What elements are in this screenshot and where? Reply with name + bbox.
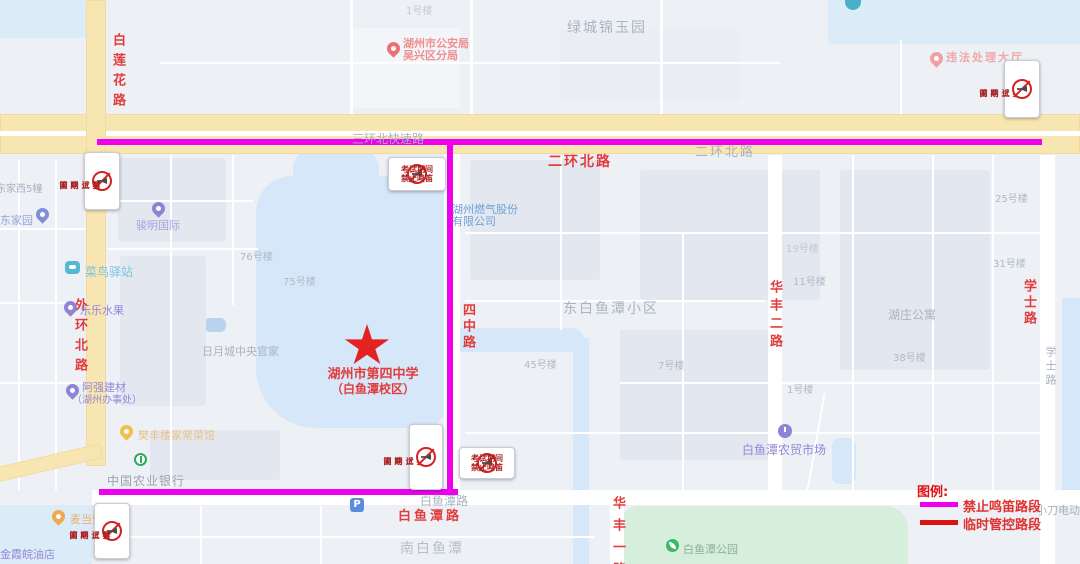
building-label-1-top: 1号楼 [406,2,432,17]
poi-police-line2: 吴兴区分局 [403,49,458,62]
park-icon[interactable] [666,539,679,552]
poi-market[interactable]: 白鱼潭农贸市场 [742,441,826,458]
building-label-45: 45号楼 [524,356,557,371]
road-label-xueshi-gray: 学士路 [1042,346,1058,388]
legend-no-horn-swatch [920,502,958,507]
road-label-huafeng1: 华丰一路 [608,496,627,564]
area-label-dongjiaxi: 东家西5幢 [0,180,42,195]
street-line [900,40,902,116]
legend-title: 图例: [917,481,948,500]
poi-jinxia[interactable]: 金霞皖油店 [0,546,55,562]
building-label-38: 38号楼 [893,349,926,364]
poi-fanfeng[interactable]: 樊丰楼家常菜馆 [138,427,215,443]
school-name-label: 湖州市第四中学 （白鱼潭校区） [303,367,443,397]
poi-park[interactable]: 白鱼潭公园 [683,541,738,557]
street-line [470,0,473,116]
street-line [350,0,353,116]
no-honk-sign-text: 考试期间禁止鸣笛 [471,454,503,472]
road-label-baiyutan-red: 白鱼潭路 [398,505,462,524]
street-line [852,155,854,490]
poi-dongjiayuan[interactable]: 东家园 [0,212,33,228]
route-no-horn-right [447,141,453,495]
building-label-25: 25号楼 [995,190,1028,205]
road-label-erhuanbei-red: 二环北路 [548,151,612,171]
river-right-edge [1062,298,1080,493]
no-honk-sign-baiyutan: 考试期间禁止鸣笛 [459,447,515,479]
street-line [0,228,88,230]
dongjiayuan-pin-icon[interactable] [33,205,51,223]
river-vertical [573,338,589,564]
area-label-riyuecheng: 日月城中央官家 [202,343,279,359]
street-line [992,155,994,490]
street-line [232,155,234,305]
no-honk-sign-sizhong-bottom: 考试期间禁止鸣笛 [409,424,443,490]
building-block [840,170,990,370]
street-line [465,232,1040,234]
market-icon[interactable] [778,424,792,438]
no-honk-sign-topleft: 考试期间禁止鸣笛 [84,152,120,210]
no-honk-sign-text: 考试期间禁止鸣笛 [401,165,433,183]
street-line [200,506,202,564]
no-honk-sign-bottomleft: 考试期间禁止鸣笛 [94,503,130,559]
legend-no-horn-label: 禁止鸣笛路段 [963,496,1041,515]
road-label-bailianhua: 白莲花路 [108,33,127,113]
poi-police[interactable]: 湖州市公安局 吴兴区分局 [403,38,469,62]
school-name-line2: （白鱼潭校区） [331,382,415,396]
road-label-huafeng2: 华丰二路 [765,280,784,352]
street-line [18,160,20,490]
street-line [95,536,595,538]
water-area [0,0,90,38]
street-line [108,248,258,250]
street-line [160,62,780,64]
water-area [828,0,1080,44]
poi-cainiao[interactable]: 菜鸟驿站 [85,263,133,280]
poi-gas-line2: 有限公司 [452,215,496,228]
building-label-7: 7号楼 [658,357,684,372]
poi-junming[interactable]: 骏明国际 [136,217,180,233]
area-label-lvcheng: 绿城锦玉园 [567,17,647,37]
road-median [0,131,1080,136]
street-line [465,432,1040,434]
cainiao-station-icon[interactable] [65,261,80,274]
legend-temp-control-swatch [920,520,958,525]
area-label-nanbaiyutan: 南白鱼潭 [400,538,464,558]
legend: 图例: 禁止鸣笛路段 临时管控路段 [905,479,1075,541]
area-label-huzhuang: 湖庄公寓 [888,306,936,323]
poi-bank[interactable]: 中国农业银行 [107,472,185,489]
parking-icon[interactable]: P [350,498,364,512]
building-label-1-right: 1号楼 [787,381,813,396]
pond-small-left [204,318,226,332]
school-name-line1: 湖州市第四中学 [327,367,418,382]
area-label-dongbaiyutan: 东白鱼潭小区 [563,298,659,318]
poi-aqiang[interactable]: 阿强建材 （湖州办事处） [82,382,142,407]
road-label-sizhong: 四中路 [458,303,477,351]
no-honk-icon [1012,79,1032,99]
map-canvas[interactable]: 三环北快速路 二环北路 白鱼潭路 学士路 绿城锦玉园 东白鱼潭小区 南白鱼潭 湖… [0,0,1080,564]
building-label-75: 75号楼 [283,273,316,288]
route-no-horn-bottom [99,489,458,495]
road-label-erhuanbei-gray: 二环北路 [695,141,755,160]
street-line [660,0,663,116]
legend-temp-control-label: 临时管控路段 [963,514,1041,533]
road-label-sanhuanbei: 三环北快速路 [352,130,424,147]
road-label-xueshi-red: 学士路 [1019,279,1038,327]
park-area [618,506,908,564]
poi-aqiang-line2: （湖州办事处） [72,395,142,406]
fanfeng-pin-icon[interactable] [117,422,135,440]
no-honk-icon [416,447,436,467]
pond-school-lobe [293,150,379,214]
building-label-76: 76号楼 [240,248,273,263]
agricultural-bank-icon[interactable] [134,453,147,466]
building-label-11: 11号楼 [793,273,826,288]
street-line [560,155,562,330]
route-no-horn-top [97,139,1042,145]
poi-gas-company[interactable]: 湖州燃气股份 有限公司 [452,204,518,228]
no-honk-sign-sizhong-top: 考试期间禁止鸣笛 [388,157,446,191]
building-block [560,30,740,100]
building-label-19: 19号楼 [786,240,819,255]
street-line [55,160,57,490]
no-honk-sign-topright: 考试期间禁止鸣笛 [1004,60,1040,118]
street-line [320,506,322,564]
poi-aqiang-line1: 阿强建材 [82,381,126,394]
poi-lele[interactable]: 乐乐水果 [80,302,124,318]
building-label-31: 31号楼 [993,255,1026,270]
